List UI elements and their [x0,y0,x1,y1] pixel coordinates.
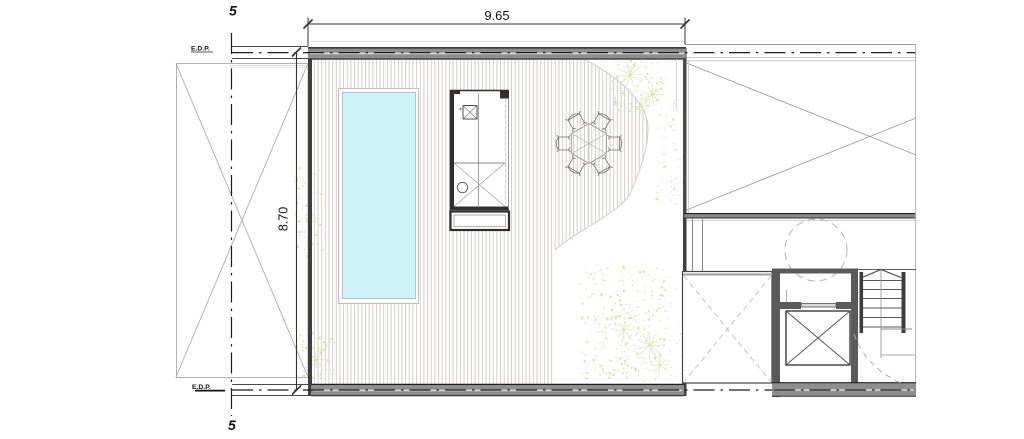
svg-text:8.70: 8.70 [277,207,291,231]
svg-text:5: 5 [229,3,237,19]
svg-text:5: 5 [228,417,236,433]
svg-text:9.65: 9.65 [484,8,509,23]
svg-text:E.D.P.: E.D.P. [191,46,210,53]
